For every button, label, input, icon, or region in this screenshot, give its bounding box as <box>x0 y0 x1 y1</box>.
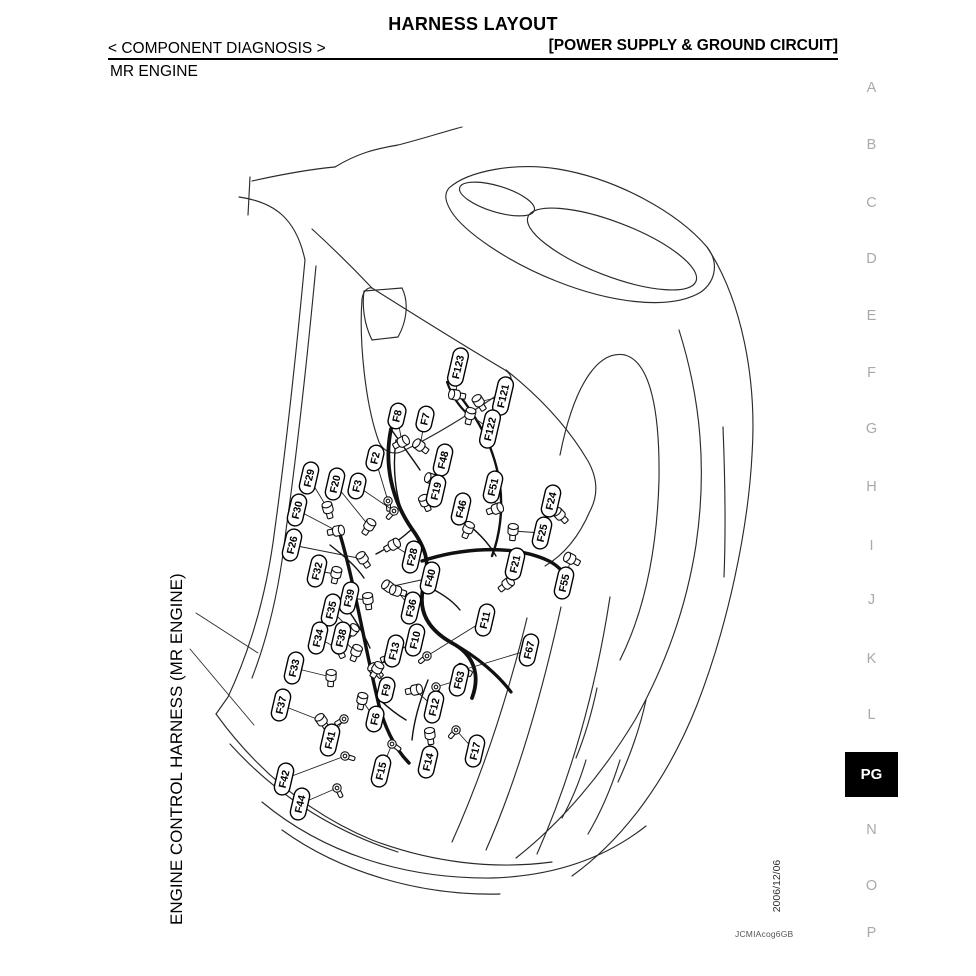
connector-label-F33: F33 <box>283 651 305 686</box>
bolt-connector-icon <box>321 500 335 519</box>
leader-line-F26 <box>292 545 363 559</box>
connector-label-F28: F28 <box>401 540 423 575</box>
bolt-connector-icon <box>325 669 336 687</box>
connector-label-F30: F30 <box>286 493 308 528</box>
bolt-connector-icon <box>411 437 431 456</box>
eyelet-connector-icon <box>446 724 462 740</box>
bolt-connector-icon <box>562 551 582 568</box>
connector-label-F26: F26 <box>281 528 303 563</box>
connector-label-F13: F13 <box>383 634 405 669</box>
connector-label-F10: F10 <box>404 623 426 658</box>
eyelet-connector-icon <box>340 751 356 763</box>
bolt-connector-icon <box>507 523 518 541</box>
connector-label-F12: F12 <box>423 690 445 725</box>
harness-layout-diagram: F123F121F122F8F7F2F3F48F19F46F51F24F25F2… <box>0 0 976 976</box>
eyelet-connector-icon <box>331 782 345 799</box>
connector-label-F44: F44 <box>289 787 311 822</box>
connector-label-F9: F9 <box>376 676 397 705</box>
manual-page: HARNESS LAYOUT < COMPONENT DIAGNOSIS > [… <box>0 0 976 976</box>
bolt-connector-icon <box>355 692 368 711</box>
bolt-connector-icon <box>448 389 467 402</box>
bolt-connector-icon <box>463 407 477 426</box>
connector-label-F15: F15 <box>370 754 392 789</box>
car-body-outline <box>190 127 753 894</box>
bolt-connector-icon <box>362 592 374 610</box>
connector-label-F2: F2 <box>365 444 386 473</box>
connector-label-F123: F123 <box>446 346 470 387</box>
bolt-connector-icon <box>355 550 373 570</box>
connector-label-F32: F32 <box>306 554 328 589</box>
connector-label-F34: F34 <box>307 621 329 656</box>
connector-labels-layer: F123F121F122F8F7F2F3F48F19F46F51F24F25F2… <box>270 346 582 821</box>
connector-label-F20: F20 <box>324 467 346 502</box>
connector-label-F42: F42 <box>273 762 295 797</box>
connector-label-F38: F38 <box>330 621 352 656</box>
connector-label-F63: F63 <box>448 663 470 698</box>
connector-label-F40: F40 <box>419 561 441 596</box>
connector-label-F55: F55 <box>553 566 575 601</box>
connector-label-F37: F37 <box>270 688 292 723</box>
connector-label-F41: F41 <box>319 723 341 758</box>
connector-label-F122: F122 <box>478 408 502 449</box>
connector-label-F17: F17 <box>464 734 486 769</box>
bolt-connector-icon <box>329 566 343 585</box>
connector-label-F3: F3 <box>347 472 368 501</box>
connector-label-F11: F11 <box>474 603 496 638</box>
connector-label-F48: F48 <box>432 443 454 478</box>
bolt-connector-icon <box>424 727 436 746</box>
connector-label-F7: F7 <box>415 405 436 434</box>
bolt-connector-icon <box>359 517 377 537</box>
connector-label-F14: F14 <box>417 745 439 780</box>
connector-label-F67: F67 <box>518 633 540 668</box>
connector-label-F25: F25 <box>531 516 553 551</box>
connector-label-F8: F8 <box>387 402 408 431</box>
